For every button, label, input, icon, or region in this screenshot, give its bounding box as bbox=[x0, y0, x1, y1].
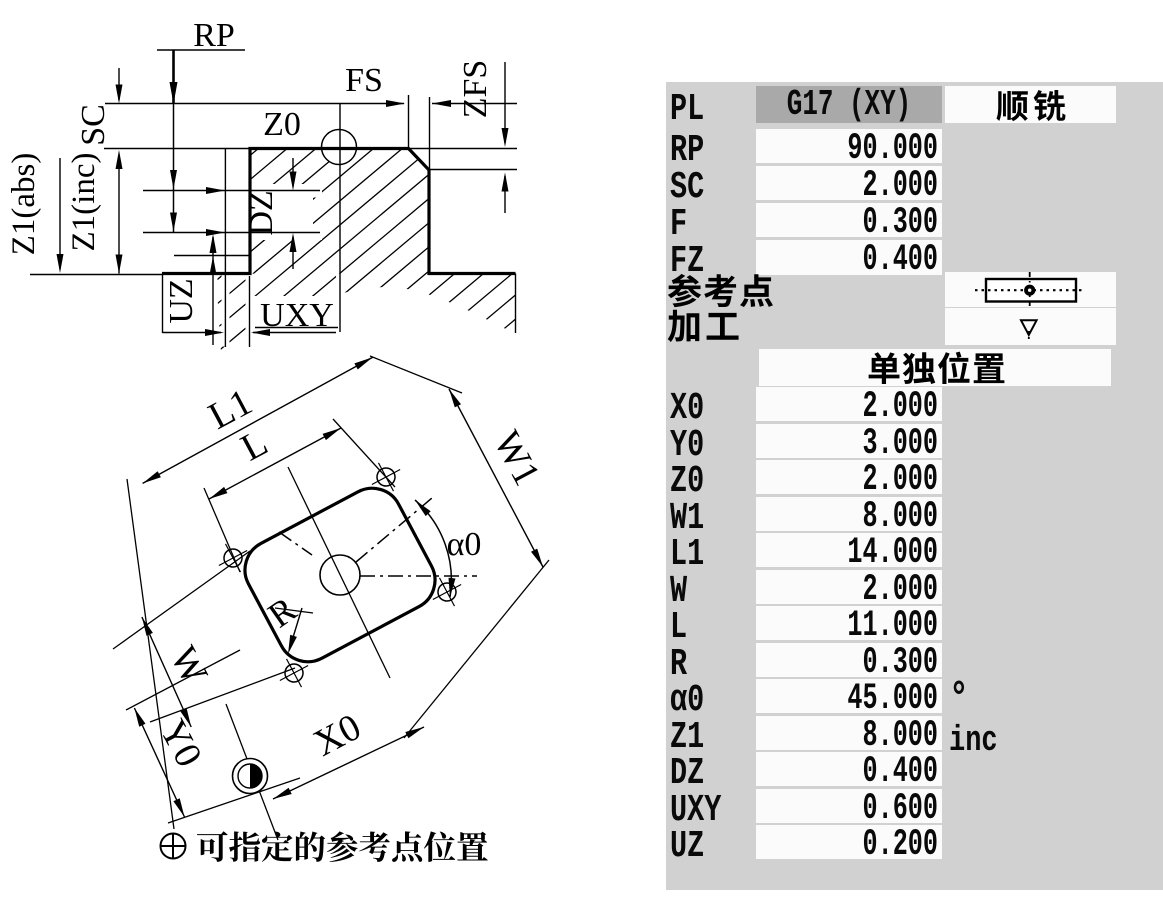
svg-text:W1: W1 bbox=[485, 424, 548, 492]
svg-text:Z1(inc): Z1(inc) bbox=[66, 153, 102, 252]
svg-text:Z0: Z0 bbox=[263, 106, 301, 143]
svg-text:DZ: DZ bbox=[243, 190, 280, 235]
svg-text:RP: RP bbox=[193, 17, 235, 54]
svg-text:X0: X0 bbox=[307, 706, 368, 765]
svg-text:L: L bbox=[234, 421, 274, 469]
svg-text:W: W bbox=[162, 640, 216, 692]
svg-text:UZ: UZ bbox=[163, 278, 200, 323]
svg-text:SC: SC bbox=[75, 104, 112, 146]
svg-text:UXY: UXY bbox=[260, 297, 334, 334]
svg-text:α0: α0 bbox=[447, 526, 482, 563]
svg-text:Z1(abs): Z1(abs) bbox=[6, 153, 42, 256]
svg-text:ZFS: ZFS bbox=[457, 60, 494, 119]
svg-text:FS: FS bbox=[345, 62, 383, 99]
